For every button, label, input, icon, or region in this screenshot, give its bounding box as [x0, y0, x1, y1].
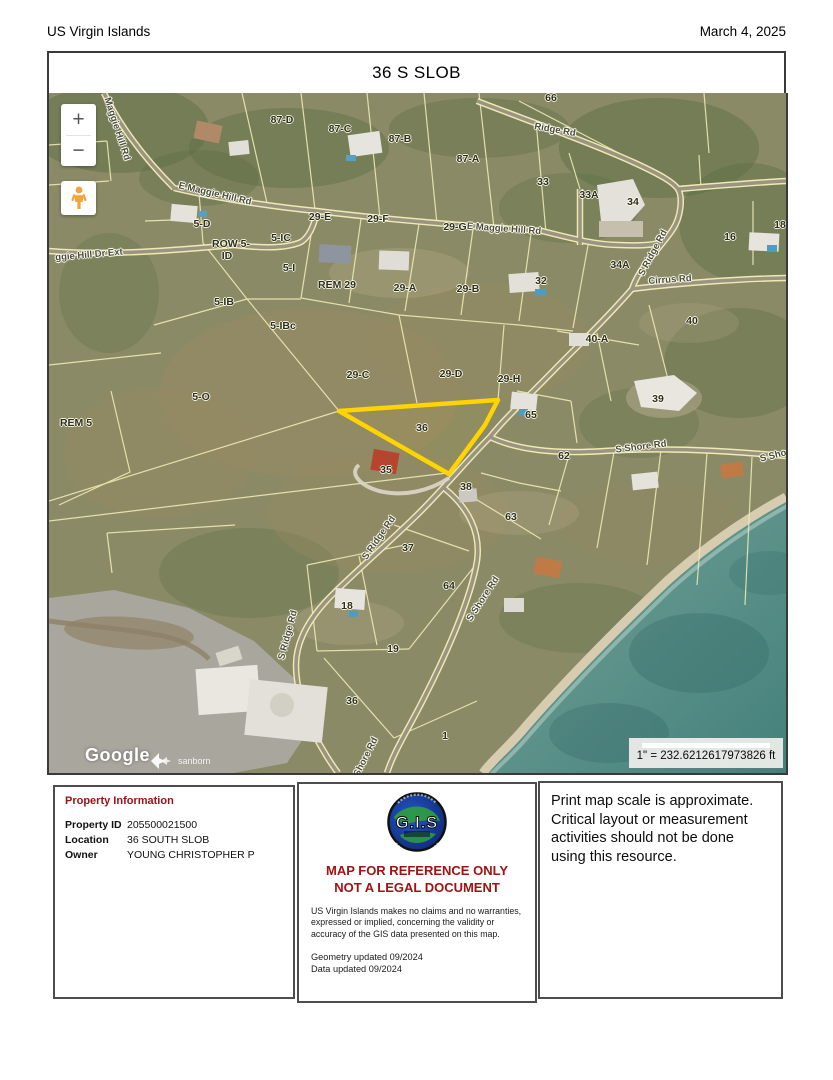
location-value: 36 SOUTH SLOB — [127, 834, 283, 846]
scale-bar — [642, 743, 770, 748]
map-viewport[interactable]: Maggie Hill RdE Maggie Hill RdRidge RdE … — [47, 93, 788, 775]
sanborn-label: sanborn — [178, 756, 211, 766]
map-title-box: 36 S SLOB — [47, 51, 786, 95]
property-info-heading: Property Information — [65, 795, 283, 807]
disclaimer-text: US Virgin Islands makes no claims and no… — [311, 906, 523, 941]
zoom-out-button[interactable]: − — [61, 136, 96, 167]
zoom-in-button[interactable]: + — [61, 104, 96, 135]
zoom-control: + − — [61, 104, 96, 166]
reference-panel: G.I.S MAP FOR REFERENCE ONLY NOT A LEGAL… — [297, 782, 537, 1003]
owner-label: Owner — [65, 849, 127, 861]
data-updated: Data updated 09/2024 — [311, 963, 523, 975]
property-id-label: Property ID — [65, 819, 127, 831]
scale-note-panel: Print map scale is approximate. Critical… — [538, 781, 783, 999]
gis-logo-text: G.I.S — [396, 814, 439, 832]
scale-indicator: 1" = 232.6212617973826 ft — [629, 738, 783, 768]
geometry-updated: Geometry updated 09/2024 — [311, 951, 523, 963]
scale-text: 1" = 232.6212617973826 ft — [629, 750, 783, 762]
property-info-table: Property ID 205500021500 Location 36 SOU… — [65, 819, 283, 861]
gis-logo: G.I.S — [386, 791, 448, 853]
map-graphic — [49, 93, 786, 773]
property-info-panel: Property Information Property ID 2055000… — [53, 785, 295, 999]
pegman-button[interactable] — [61, 181, 96, 215]
reference-warning: MAP FOR REFERENCE ONLY NOT A LEGAL DOCUM… — [299, 863, 535, 897]
page: US Virgin Islands March 4, 2025 36 S SLO… — [0, 0, 833, 1080]
header-date: March 4, 2025 — [700, 24, 786, 39]
map-title: 36 S SLOB — [372, 63, 461, 83]
pegman-icon — [71, 186, 87, 210]
property-id-value: 205500021500 — [127, 819, 283, 831]
sanborn-attribution: sanborn — [149, 751, 211, 771]
warning-line-2: NOT A LEGAL DOCUMENT — [299, 880, 535, 897]
sanborn-icon — [149, 751, 175, 771]
google-logo: Google — [85, 745, 150, 766]
header-region: US Virgin Islands — [47, 24, 150, 39]
scale-note-text: Print map scale is approximate. Critical… — [551, 792, 770, 866]
warning-line-1: MAP FOR REFERENCE ONLY — [299, 863, 535, 880]
location-label: Location — [65, 834, 127, 846]
page-header: US Virgin Islands March 4, 2025 — [47, 24, 786, 39]
owner-value: YOUNG CHRISTOPHER P — [127, 849, 283, 861]
